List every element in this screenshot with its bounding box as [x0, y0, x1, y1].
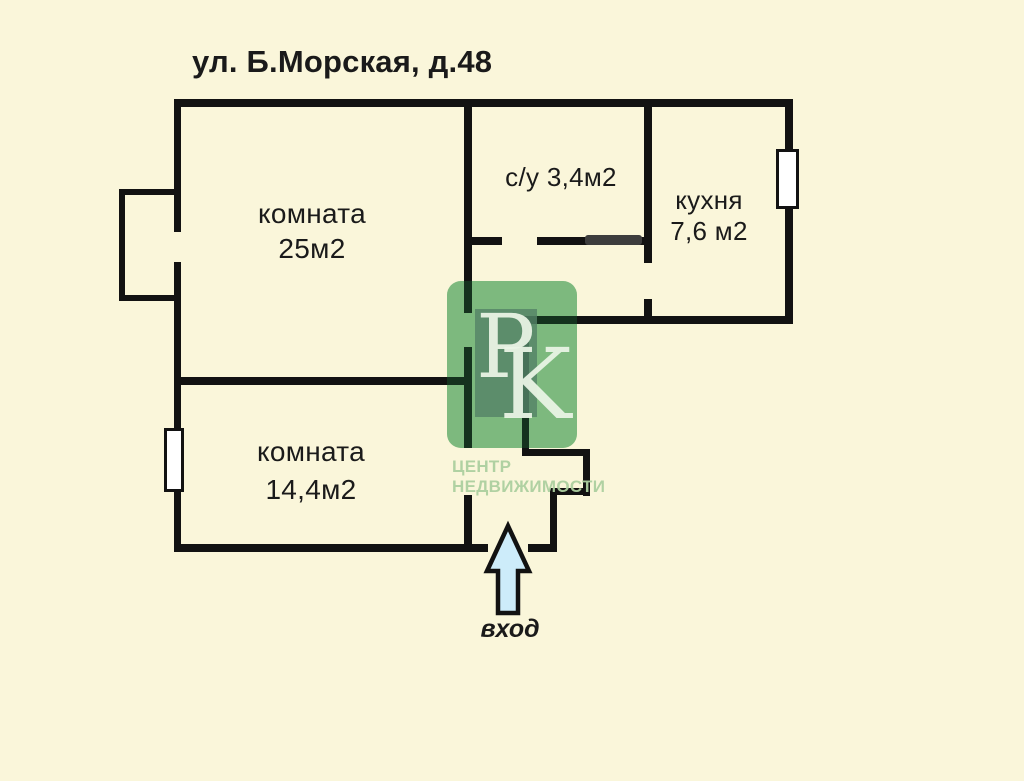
wall-balcony-top: [119, 189, 177, 195]
room-living-area: 25м2: [212, 231, 412, 266]
entrance-arrow-icon: [479, 519, 537, 619]
wall-room-divider: [174, 377, 472, 385]
wall-outer-left-lower: [174, 262, 181, 551]
window-bedroom: [164, 428, 184, 492]
watermark-tagline-line2: НЕДВИЖИМОСТИ: [452, 477, 605, 497]
wall-bathroom-bottom-left: [464, 237, 502, 245]
room-bedroom-area: 14,4м2: [211, 471, 411, 509]
entrance-label: вход: [454, 615, 566, 644]
wall-outer-top: [174, 99, 793, 107]
room-bedroom-name: комната: [211, 433, 411, 471]
room-bathroom-area: 3,4м2: [547, 162, 617, 192]
wall-balcony-left: [119, 189, 125, 301]
room-kitchen-area: 7,6 м2: [610, 216, 808, 247]
room-bathroom-name: с/у: [505, 162, 539, 192]
wall-kitchen-divider-lower: [644, 299, 652, 324]
wall-central-lower: [464, 495, 472, 551]
watermark-tagline: ЦЕНТР НЕДВИЖИМОСТИ: [452, 457, 605, 497]
room-label-bedroom: комната 14,4м2: [211, 433, 411, 509]
wall-vestibule-step-top: [522, 449, 590, 456]
room-label-kitchen: кухня 7,6 м2: [610, 185, 808, 247]
plan-title: ул. Б.Морская, д.48: [192, 44, 492, 80]
watermark-tagline-line1: ЦЕНТР: [452, 457, 605, 477]
room-kitchen-name: кухня: [610, 185, 808, 216]
wall-balcony-bottom: [119, 295, 177, 301]
wall-outer-bottom-left: [174, 544, 488, 552]
wall-outer-left-upper: [174, 99, 181, 232]
wall-vestibule-inner: [550, 488, 557, 552]
watermark-letter-k: K: [499, 336, 571, 433]
floor-plan: ул. Б.Морская, д.48 P K ЦЕНТР НЕДВИЖИМОС…: [0, 0, 1024, 781]
room-living-name: комната: [212, 196, 412, 231]
room-label-living: комната 25м2: [212, 196, 412, 266]
